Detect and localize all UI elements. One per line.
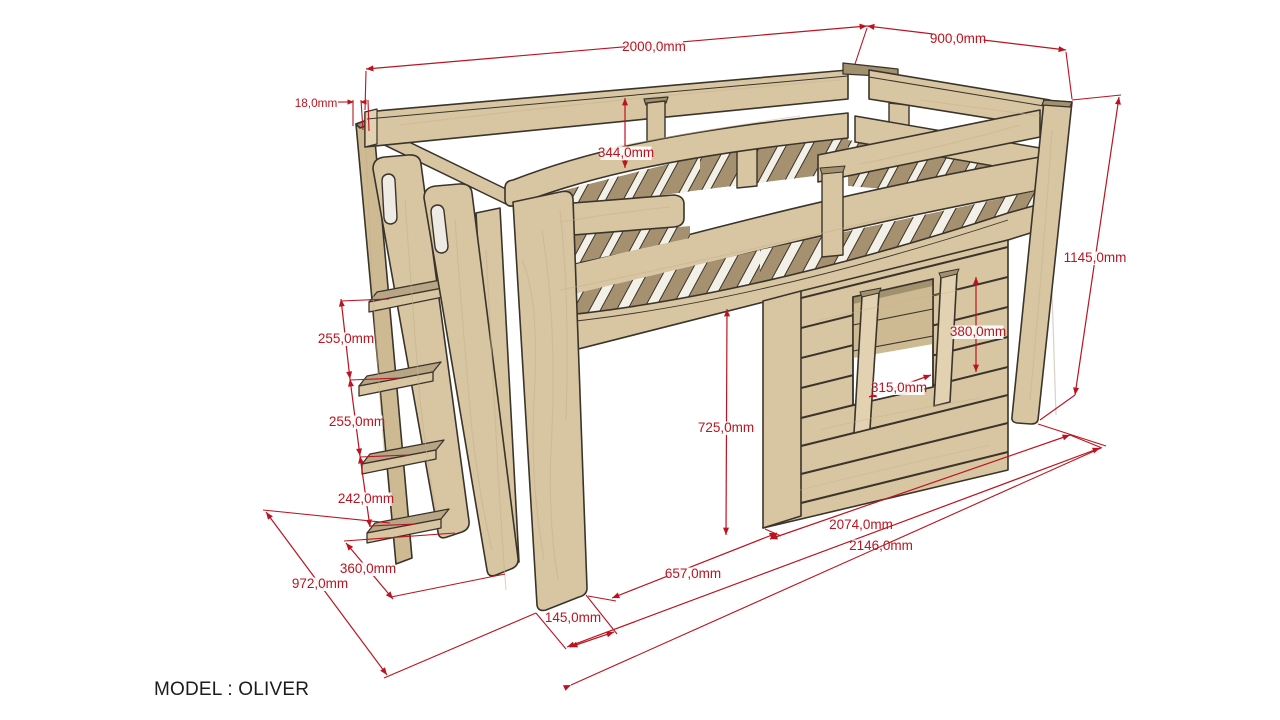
svg-text:1145,0mm: 1145,0mm <box>1064 250 1127 265</box>
svg-text:2146,0mm: 2146,0mm <box>849 538 913 553</box>
svg-text:972,0mm: 972,0mm <box>292 576 348 591</box>
svg-text:2074,0mm: 2074,0mm <box>829 517 893 532</box>
svg-text:344,0mm: 344,0mm <box>598 145 654 160</box>
svg-text:360,0mm: 360,0mm <box>340 561 396 576</box>
svg-text:18,0mm: 18,0mm <box>295 96 338 110</box>
svg-text:315,0mm: 315,0mm <box>871 380 927 395</box>
svg-text:900,0mm: 900,0mm <box>930 31 986 46</box>
svg-text:657,0mm: 657,0mm <box>665 566 721 581</box>
svg-text:725,0mm: 725,0mm <box>698 420 754 435</box>
svg-text:255,0mm: 255,0mm <box>329 414 385 429</box>
svg-text:255,0mm: 255,0mm <box>318 331 374 346</box>
svg-text:145,0mm: 145,0mm <box>545 610 601 625</box>
svg-text:242,0mm: 242,0mm <box>338 491 394 506</box>
svg-text:MODEL : OLIVER: MODEL : OLIVER <box>154 679 309 700</box>
svg-text:2000,0mm: 2000,0mm <box>622 39 686 54</box>
svg-text:380,0mm: 380,0mm <box>950 324 1006 339</box>
